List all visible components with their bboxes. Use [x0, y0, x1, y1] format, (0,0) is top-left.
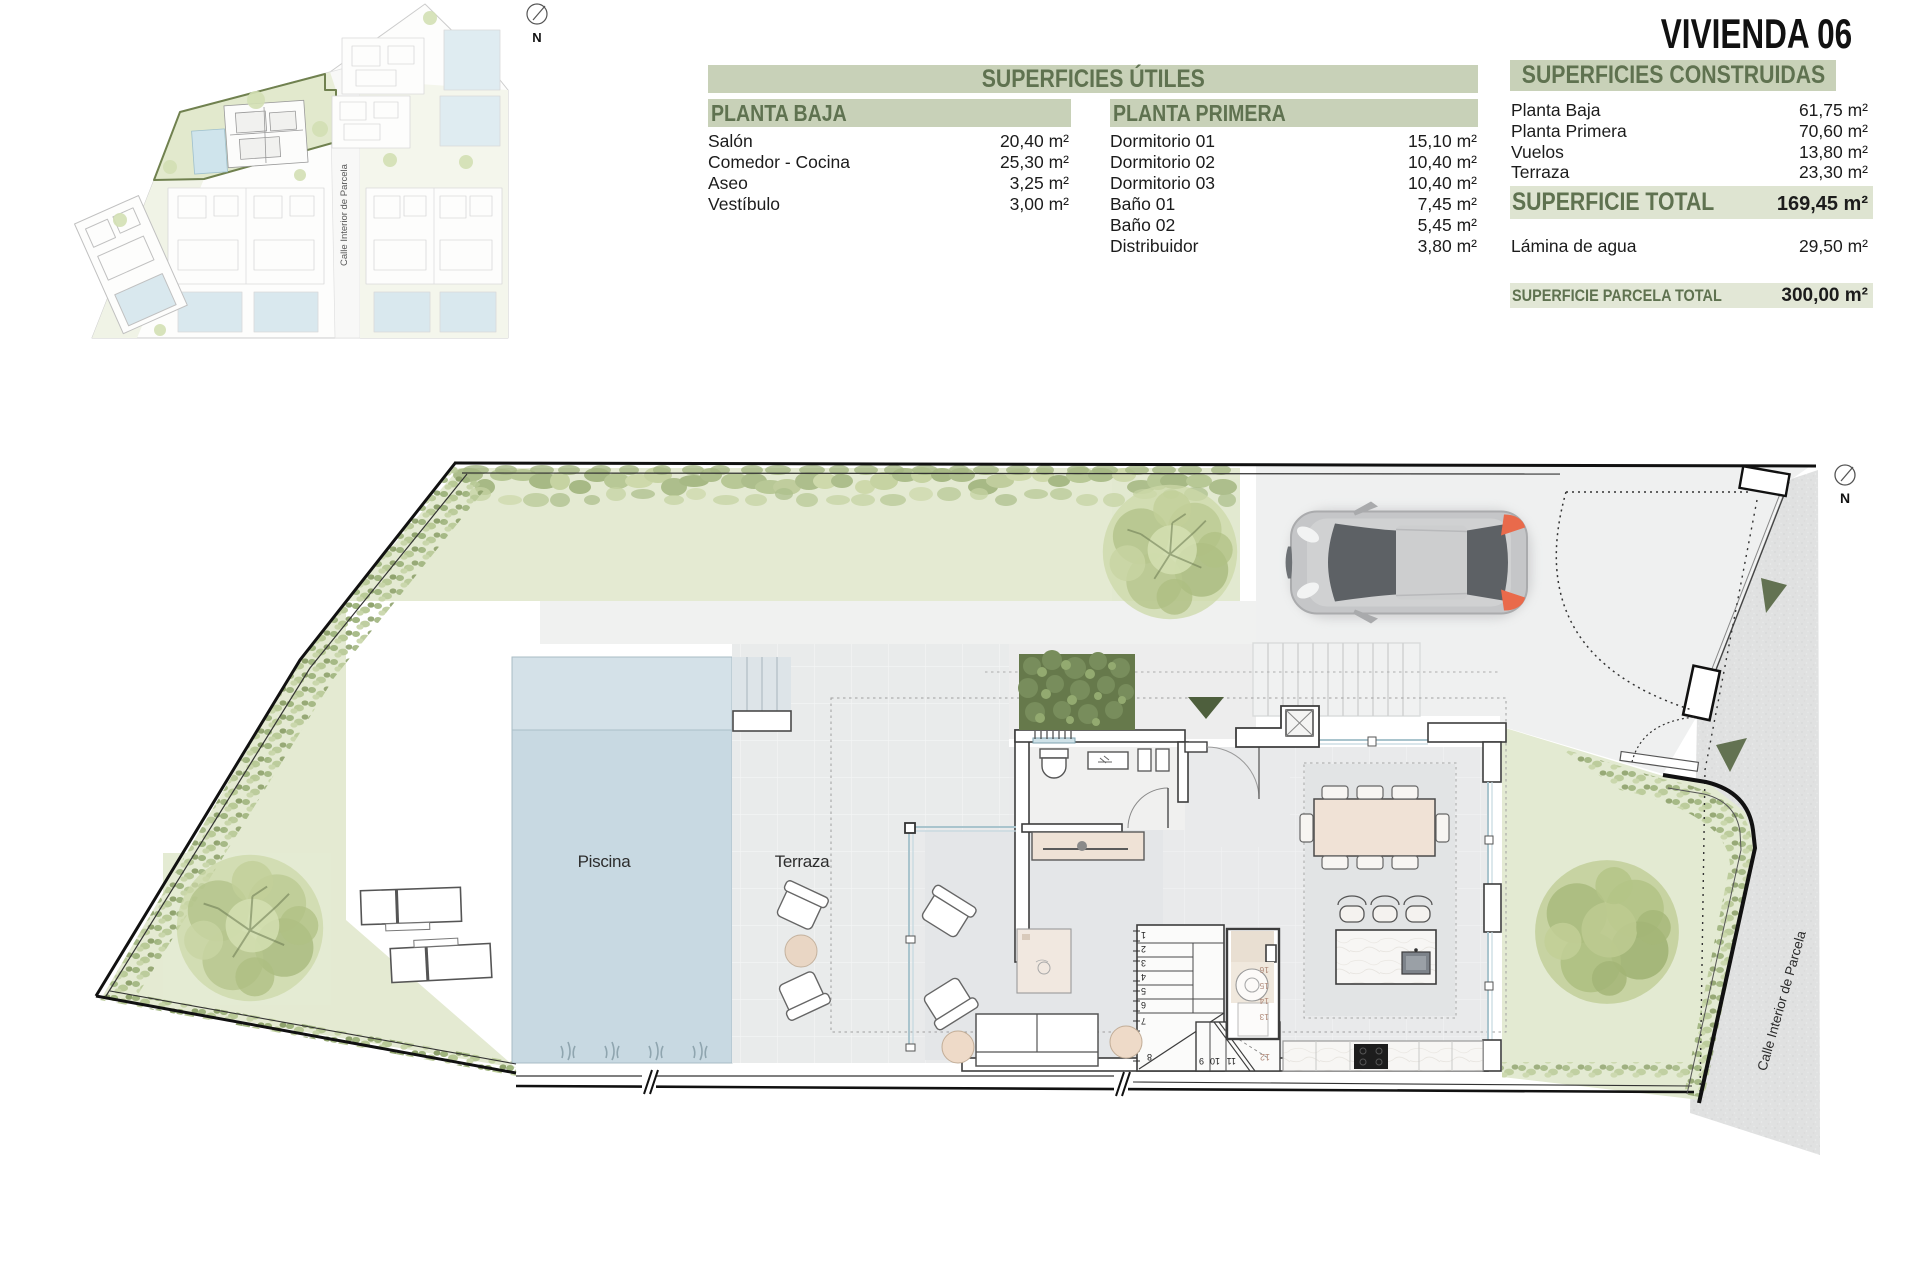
- svg-text:6: 6: [1141, 1000, 1146, 1010]
- svg-text:12: 12: [1260, 1052, 1270, 1062]
- svg-text:Piscina: Piscina: [578, 852, 632, 871]
- svg-text:5: 5: [1141, 986, 1146, 996]
- svg-text:N: N: [532, 30, 541, 45]
- svg-text:Terraza: Terraza: [775, 852, 830, 871]
- svg-text:Calle Interior de Parcela: Calle Interior de Parcela: [339, 163, 350, 266]
- svg-text:2: 2: [1141, 944, 1146, 954]
- svg-text:4: 4: [1141, 972, 1146, 982]
- svg-text:7: 7: [1141, 1016, 1146, 1026]
- svg-text:N: N: [1840, 490, 1850, 506]
- svg-text:11: 11: [1227, 1056, 1236, 1066]
- svg-text:1: 1: [1141, 930, 1146, 940]
- svg-text:16: 16: [1259, 965, 1269, 975]
- svg-text:14: 14: [1259, 996, 1269, 1006]
- svg-text:10: 10: [1210, 1056, 1220, 1066]
- svg-text:15: 15: [1259, 981, 1269, 991]
- svg-text:3: 3: [1141, 958, 1146, 968]
- svg-text:9: 9: [1199, 1056, 1204, 1066]
- svg-text:13: 13: [1259, 1012, 1269, 1022]
